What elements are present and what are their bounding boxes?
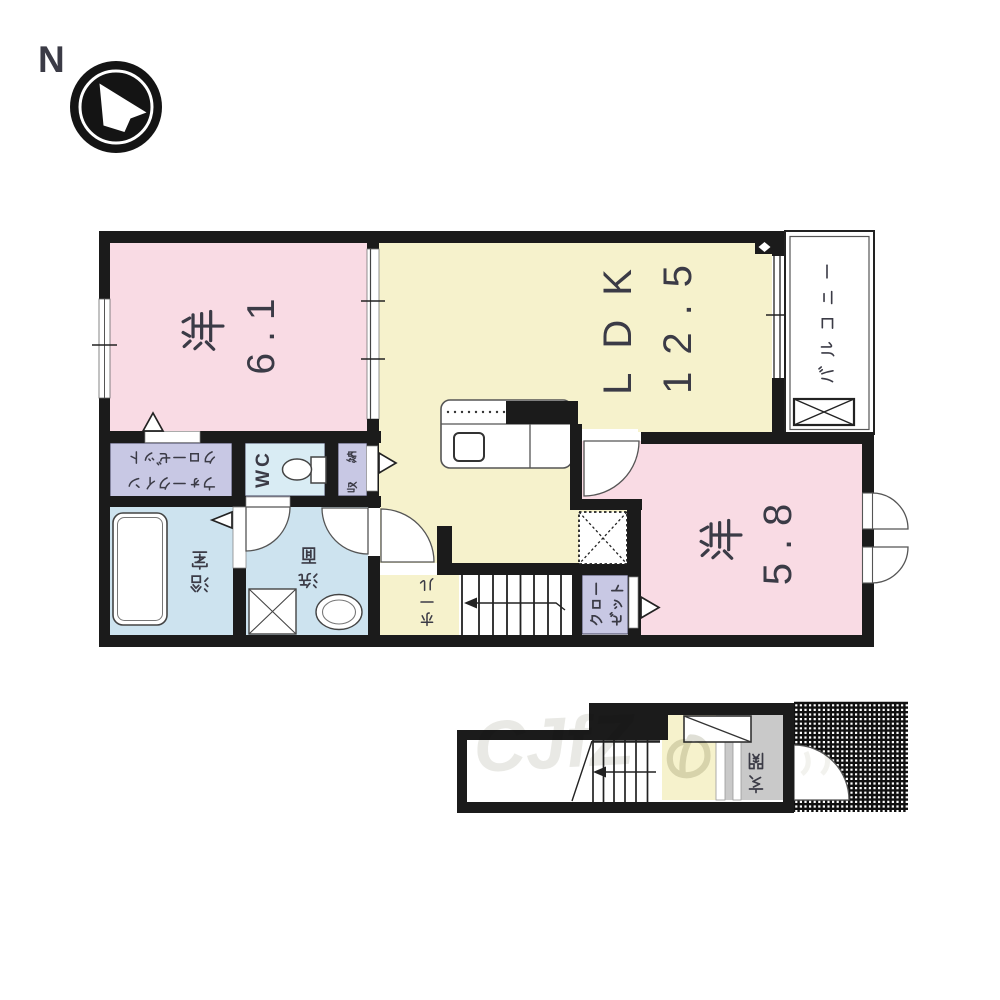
svg-text:6.1: 6.1	[240, 287, 283, 374]
svg-text:CJfZ: CJfZ	[472, 700, 639, 788]
svg-text:N: N	[38, 39, 65, 80]
svg-text:5.8: 5.8	[756, 491, 800, 586]
svg-text:LDK: LDK	[596, 245, 640, 395]
svg-text:12.5: 12.5	[656, 248, 700, 394]
svg-text:WC: WC	[253, 450, 274, 488]
